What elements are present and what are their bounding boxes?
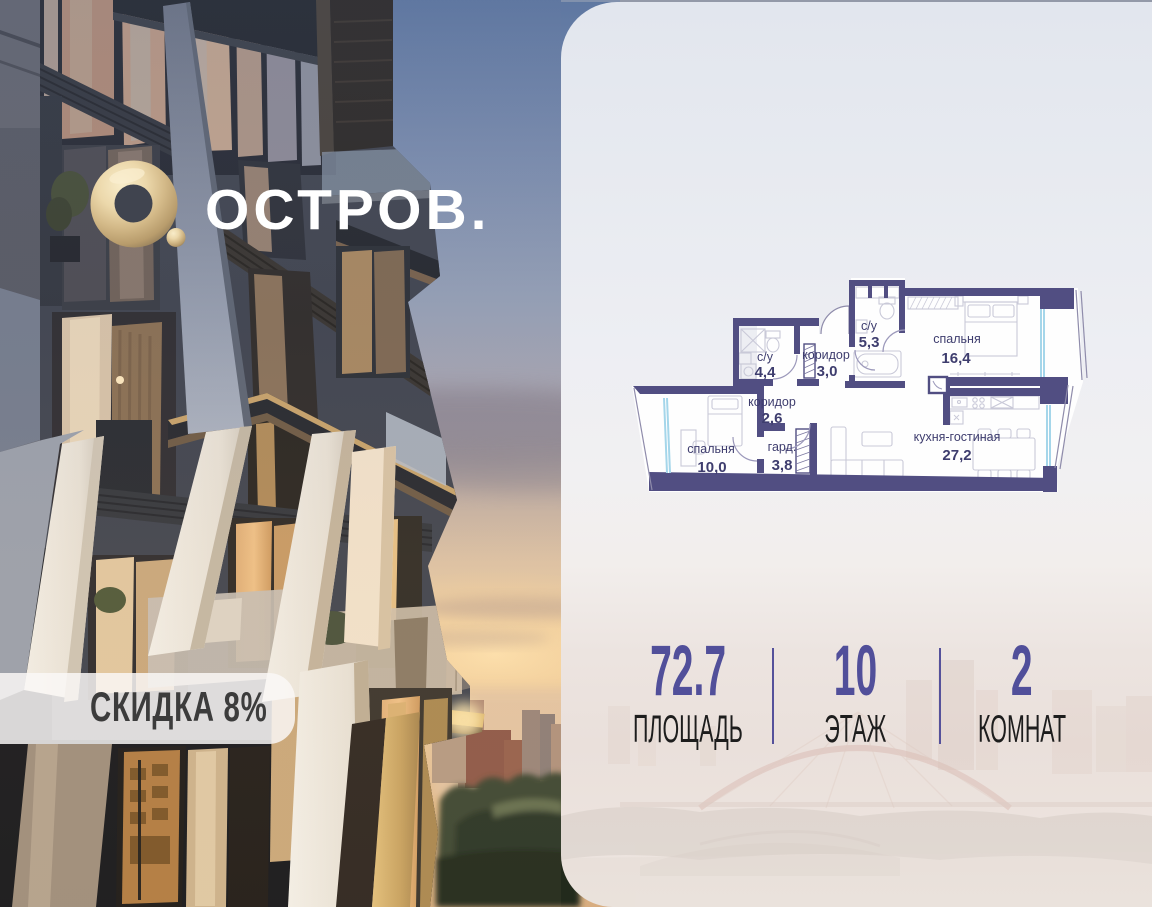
svg-text:с/у: с/у xyxy=(861,319,878,333)
svg-text:5,3: 5,3 xyxy=(859,334,880,351)
svg-text:4,4: 4,4 xyxy=(755,364,777,381)
svg-text:10,0: 10,0 xyxy=(697,459,726,476)
svg-text:3,8: 3,8 xyxy=(772,457,793,474)
svg-text:коридор: коридор xyxy=(748,395,796,409)
svg-text:3,0: 3,0 xyxy=(817,363,838,380)
svg-text:16,4: 16,4 xyxy=(941,350,971,367)
svg-text:гард.: гард. xyxy=(768,440,797,454)
svg-text:спальня: спальня xyxy=(933,332,980,346)
svg-text:коридор: коридор xyxy=(802,348,850,362)
svg-text:кухня-гостиная: кухня-гостиная xyxy=(914,430,1001,444)
svg-text:спальня: спальня xyxy=(687,442,734,456)
svg-text:ОСТРОВ.: ОСТРОВ. xyxy=(205,178,491,242)
svg-text:2,6: 2,6 xyxy=(762,410,783,427)
svg-text:27,2: 27,2 xyxy=(942,447,971,464)
svg-text:с/у: с/у xyxy=(757,350,774,364)
